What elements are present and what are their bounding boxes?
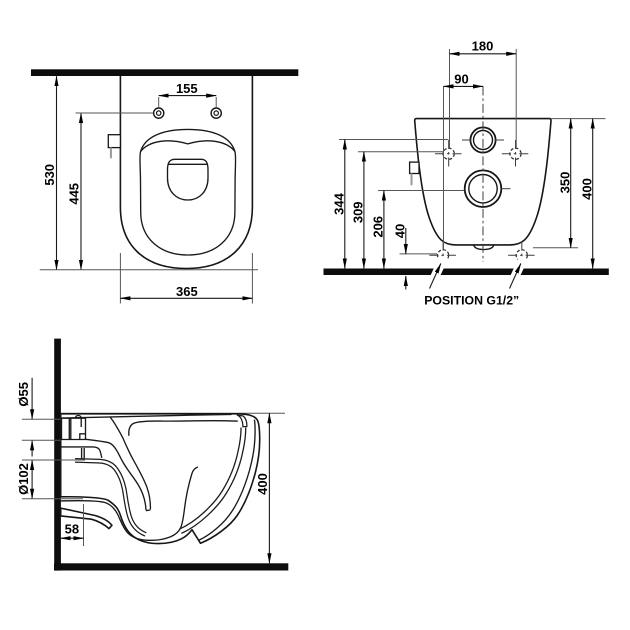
svg-text:Ø55: Ø55 [16, 382, 31, 407]
svg-text:344: 344 [331, 192, 346, 214]
svg-text:206: 206 [371, 216, 386, 238]
svg-text:90: 90 [454, 71, 468, 86]
svg-text:40: 40 [392, 224, 407, 238]
svg-text:400: 400 [579, 178, 594, 200]
svg-text:400: 400 [255, 473, 270, 495]
svg-text:530: 530 [42, 164, 57, 186]
svg-text:155: 155 [176, 81, 198, 96]
svg-text:POSITION G1/2”: POSITION G1/2” [424, 294, 519, 308]
svg-text:309: 309 [351, 201, 366, 223]
svg-text:180: 180 [472, 39, 494, 54]
svg-text:350: 350 [557, 172, 572, 194]
svg-text:Ø102: Ø102 [16, 463, 31, 495]
svg-text:445: 445 [66, 183, 81, 205]
svg-text:58: 58 [65, 522, 79, 537]
svg-text:365: 365 [176, 284, 198, 299]
